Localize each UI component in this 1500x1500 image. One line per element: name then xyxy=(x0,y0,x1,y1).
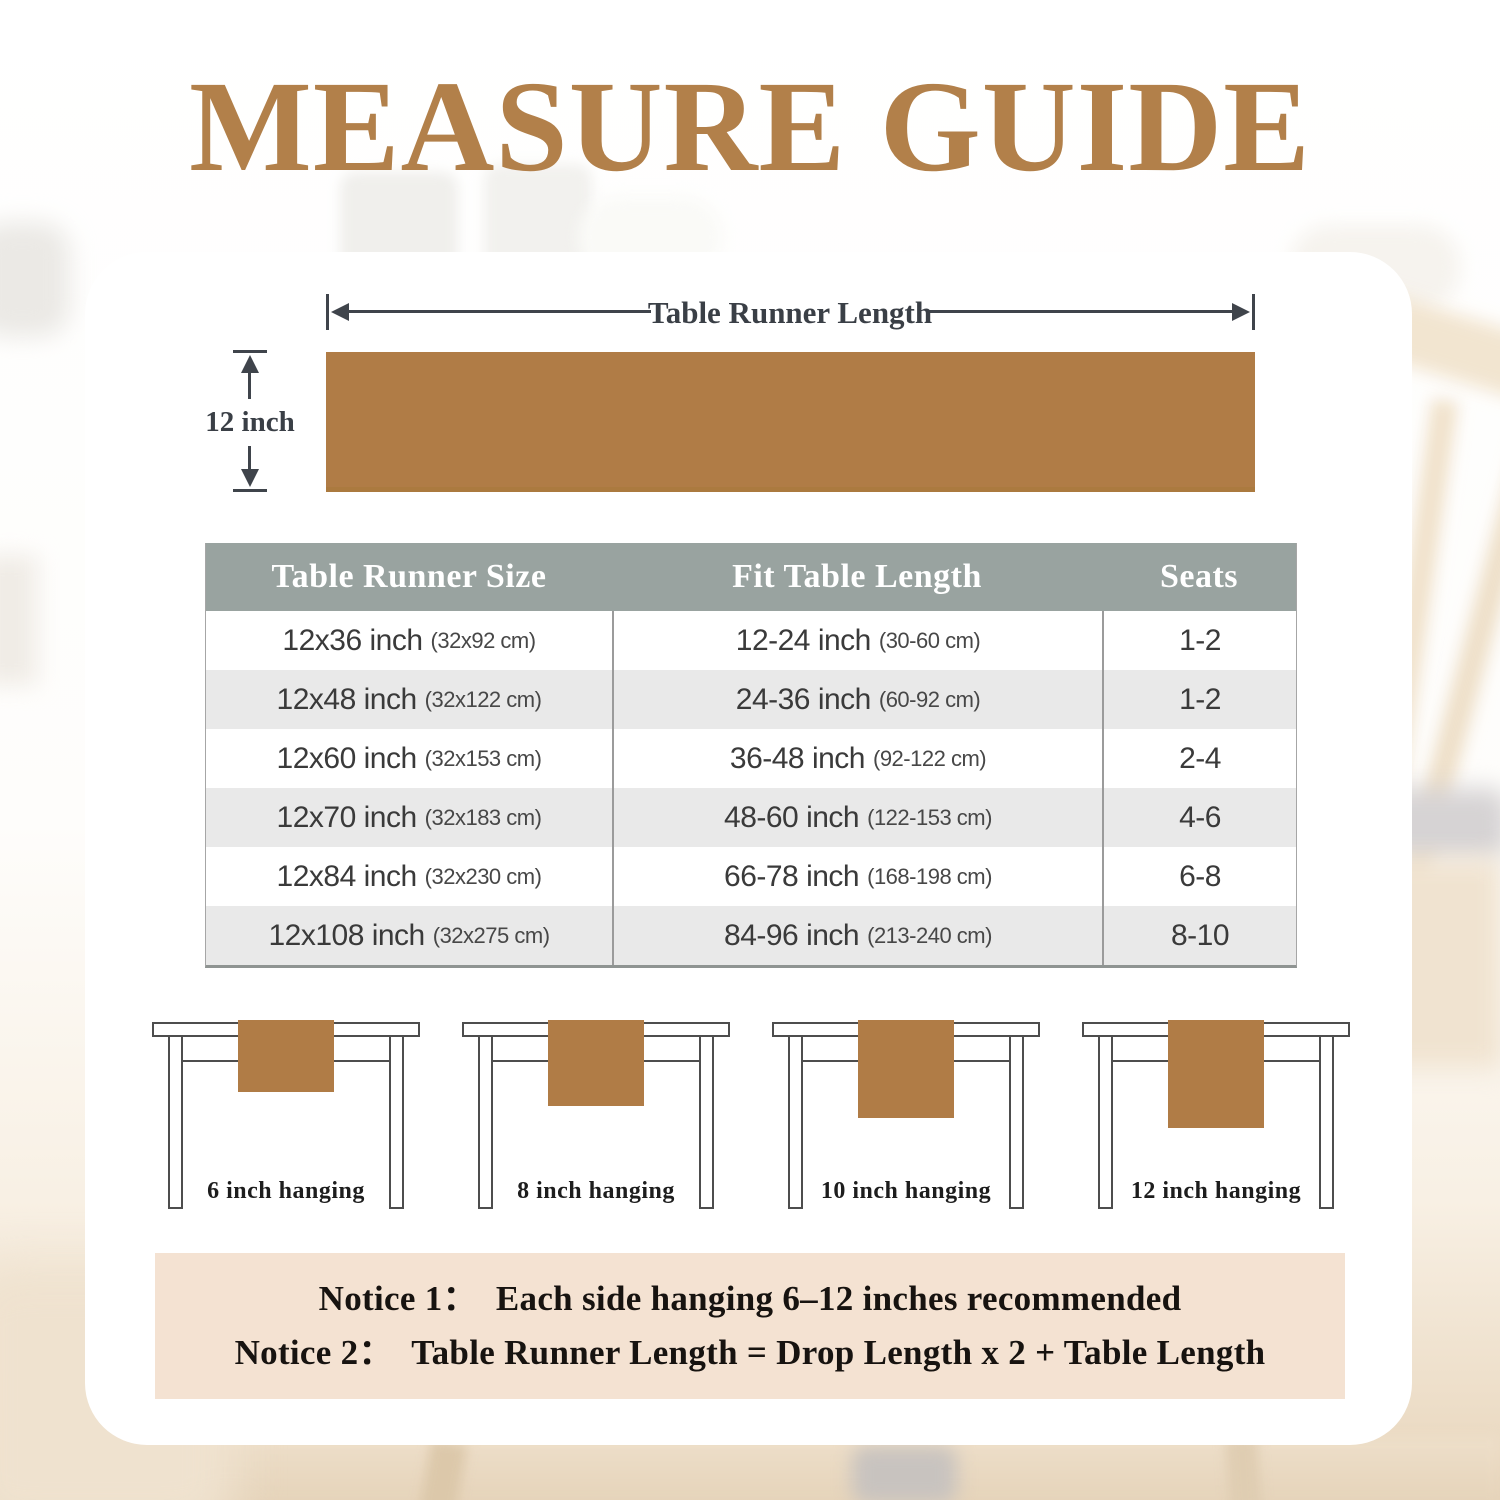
column-header-fit-length: Fit Table Length xyxy=(612,558,1102,596)
runner-size: 12x48 inch xyxy=(277,683,417,717)
table-leg xyxy=(478,1036,493,1209)
runner-drop xyxy=(548,1020,644,1106)
table-leg xyxy=(168,1036,183,1209)
fit-length: 24-36 inch xyxy=(736,683,871,717)
fit-length: 36-48 inch xyxy=(730,742,865,776)
fit-length-cm: (168-198 cm) xyxy=(867,864,992,890)
column-header-seats: Seats xyxy=(1102,558,1296,596)
table-leg xyxy=(1098,1036,1113,1209)
fit-length-cm: (213-240 cm) xyxy=(867,923,992,949)
background-blur-shape xyxy=(0,222,70,337)
seats: 1-2 xyxy=(1179,683,1221,717)
table-runner-swatch xyxy=(326,352,1255,492)
length-dimension-tick-right xyxy=(1252,294,1255,330)
seats: 4-6 xyxy=(1179,801,1221,835)
hanging-example-6-inch: 6 inch hanging xyxy=(152,1020,420,1225)
runner-drop xyxy=(238,1020,334,1092)
length-dimension-line xyxy=(928,310,1236,313)
runner-drop xyxy=(1168,1020,1264,1128)
width-dimension-tick-top xyxy=(233,350,267,353)
page-title: MEASURE GUIDE xyxy=(0,62,1500,192)
table-row: 12x48 inch(32x122 cm) 24-36 inch(60-92 c… xyxy=(206,670,1296,729)
table-leg xyxy=(1319,1036,1334,1209)
background-blur-shape xyxy=(0,555,37,685)
table-row: 12x60 inch(32x153 cm) 36-48 inch(92-122 … xyxy=(206,729,1296,788)
fit-length-cm: (122-153 cm) xyxy=(867,805,992,831)
width-dimension-tick-bottom xyxy=(233,489,267,492)
runner-size-cm: (32x230 cm) xyxy=(425,864,542,890)
table-leg xyxy=(699,1036,714,1209)
hanging-label: 6 inch hanging xyxy=(152,1178,420,1205)
hanging-label: 10 inch hanging xyxy=(772,1178,1040,1205)
fit-length-cm: (30-60 cm) xyxy=(879,628,980,654)
size-table-header-row: Table Runner Size Fit Table Length Seats xyxy=(206,543,1296,611)
runner-size-cm: (32x92 cm) xyxy=(431,628,536,654)
background-floor-blur xyxy=(1225,1437,1263,1500)
table-leg xyxy=(389,1036,404,1209)
runner-size-cm: (32x275 cm) xyxy=(433,923,550,949)
table-row: 12x108 inch(32x275 cm) 84-96 inch(213-24… xyxy=(206,906,1296,965)
runner-size: 12x36 inch xyxy=(282,624,422,658)
measure-guide-infographic: MEASURE GUIDE Table Runner Length 12 inc… xyxy=(0,0,1500,1500)
hanging-example-8-inch: 8 inch hanging xyxy=(462,1020,730,1225)
length-dimension-label: Table Runner Length xyxy=(648,295,932,331)
fit-length: 66-78 inch xyxy=(724,860,859,894)
seats: 1-2 xyxy=(1179,624,1221,658)
notice-line-1: Notice 1： Each side hanging 6–12 inches … xyxy=(319,1280,1182,1319)
table-row: 12x84 inch(32x230 cm) 66-78 inch(168-198… xyxy=(206,847,1296,906)
table-leg xyxy=(788,1036,803,1209)
table-row: 12x36 inch(32x92 cm) 12-24 inch(30-60 cm… xyxy=(206,611,1296,670)
seats: 8-10 xyxy=(1171,919,1229,953)
width-dimension-line xyxy=(248,371,251,399)
length-dimension-line xyxy=(346,310,651,313)
runner-size-cm: (32x183 cm) xyxy=(425,805,542,831)
runner-size: 12x84 inch xyxy=(277,860,417,894)
runner-size: 12x108 inch xyxy=(268,919,424,953)
width-dimension-label: 12 inch xyxy=(199,406,300,439)
runner-drop xyxy=(858,1020,954,1118)
hanging-label: 8 inch hanging xyxy=(462,1178,730,1205)
table-row: 12x70 inch(32x183 cm) 48-60 inch(122-153… xyxy=(206,788,1296,847)
background-floor-blur xyxy=(852,1446,957,1500)
hanging-example-12-inch: 12 inch hanging xyxy=(1082,1020,1350,1225)
fit-length: 84-96 inch xyxy=(724,919,859,953)
runner-size-cm: (32x153 cm) xyxy=(425,746,542,772)
fit-length: 48-60 inch xyxy=(724,801,859,835)
seats: 6-8 xyxy=(1179,860,1221,894)
hanging-label: 12 inch hanging xyxy=(1082,1178,1350,1205)
runner-size-cm: (32x122 cm) xyxy=(425,687,542,713)
notice-box: Notice 1： Each side hanging 6–12 inches … xyxy=(155,1253,1345,1399)
seats: 2-4 xyxy=(1179,742,1221,776)
runner-size: 12x60 inch xyxy=(277,742,417,776)
width-dimension-line xyxy=(248,446,251,472)
fit-length-cm: (92-122 cm) xyxy=(873,746,986,772)
fit-length-cm: (60-92 cm) xyxy=(879,687,980,713)
table-leg xyxy=(1009,1036,1024,1209)
runner-size: 12x70 inch xyxy=(277,801,417,835)
size-table: Table Runner Size Fit Table Length Seats… xyxy=(205,543,1297,968)
hanging-example-10-inch: 10 inch hanging xyxy=(772,1020,1040,1225)
fit-length: 12-24 inch xyxy=(736,624,871,658)
length-dimension-tick-left xyxy=(326,294,329,330)
column-header-runner-size: Table Runner Size xyxy=(206,558,612,596)
notice-line-2: Notice 2： Table Runner Length = Drop Len… xyxy=(235,1334,1266,1373)
